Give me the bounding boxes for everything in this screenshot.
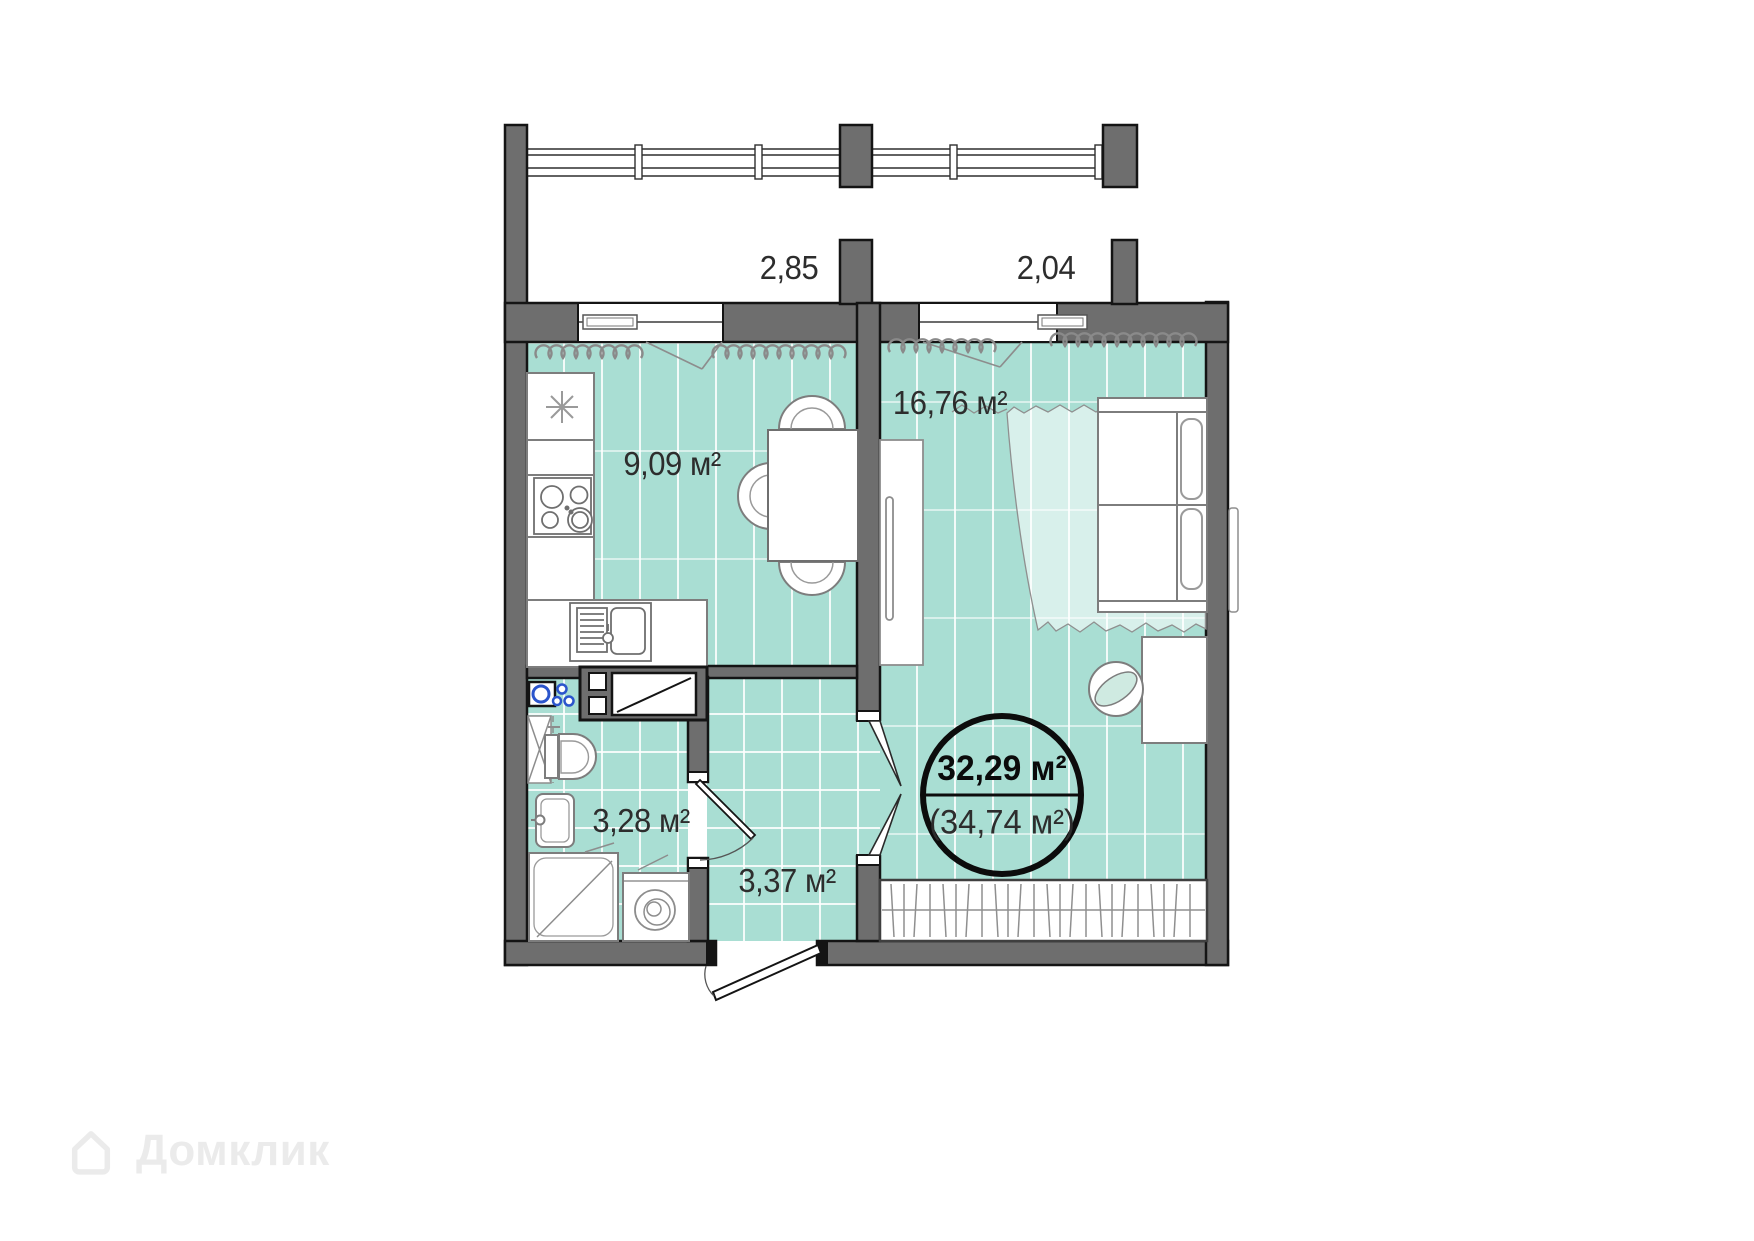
washbasin-icon <box>531 794 574 847</box>
dining-table-top <box>768 430 858 561</box>
bathroom-wall-lower-stub <box>688 858 708 941</box>
water-meter-icon <box>529 682 574 706</box>
balcony-middle-pillar-top <box>840 125 872 187</box>
balcony-middle-pillar-bottom <box>840 240 872 304</box>
bathroom-door <box>696 780 755 860</box>
living-area-label: 16,76 м² <box>893 384 1007 422</box>
entrance-door <box>705 945 821 1000</box>
ventilation-block <box>580 667 707 720</box>
pillow <box>1181 509 1202 589</box>
kitchen-area-label: 9,09 м² <box>623 445 720 483</box>
total-area-secondary-label: (34,74 м²) <box>929 804 1075 843</box>
watermark: Домклик <box>62 1122 330 1180</box>
bottom-wall-left <box>505 941 716 965</box>
floor-plan-drawing <box>0 0 1754 1241</box>
wardrobe-bottom <box>880 880 1207 941</box>
right-wall <box>1206 302 1228 965</box>
balcony-railing <box>527 145 1110 179</box>
bed <box>1098 398 1207 612</box>
total-area-main-label: 32,29 м² <box>937 749 1066 789</box>
balcony-right-pillar-bottom <box>1112 240 1137 304</box>
kitchen-window-casement-swing <box>646 342 722 369</box>
total-area-badge <box>923 716 1081 874</box>
right-wall-window-sash <box>1229 508 1238 612</box>
floor-plan-canvas: 2,85 2,04 9,09 м² 16,76 м² 3,28 м² 3,37 … <box>0 0 1754 1241</box>
wall-end-caps <box>688 711 880 868</box>
shower-icon <box>529 843 618 941</box>
dining-table <box>738 396 858 595</box>
kitchen-living-wall <box>857 303 880 720</box>
living-wall-lower-stub <box>857 856 880 941</box>
desk <box>1142 637 1207 743</box>
pillow <box>1181 419 1202 499</box>
washing-machine-icon <box>623 855 689 941</box>
watermark-brand-text: Домклик <box>136 1126 330 1176</box>
bottom-wall-right <box>817 941 1228 965</box>
living-window-casement-swing <box>923 342 1022 367</box>
balcony-right-pillar-top <box>1103 125 1137 187</box>
hallway-area-label: 3,37 м² <box>738 862 835 900</box>
dining-chair-top <box>779 396 845 429</box>
balcony-right-label: 2,04 <box>1017 249 1076 287</box>
dining-chair-left <box>738 463 771 529</box>
left-wall <box>505 125 527 965</box>
balcony-left-label: 2,85 <box>760 249 819 287</box>
stove-icon <box>534 478 592 534</box>
desk-chair <box>1089 662 1143 716</box>
kitchen-sink-icon <box>570 603 651 661</box>
house-logo-icon <box>62 1122 120 1180</box>
kitchen-window <box>578 303 723 369</box>
wardrobe-left <box>880 440 923 665</box>
dining-chair-bottom <box>779 562 845 595</box>
toilet-icon <box>545 734 596 779</box>
living-room-double-door <box>869 721 901 855</box>
bathroom-area-label: 3,28 м² <box>592 802 689 840</box>
